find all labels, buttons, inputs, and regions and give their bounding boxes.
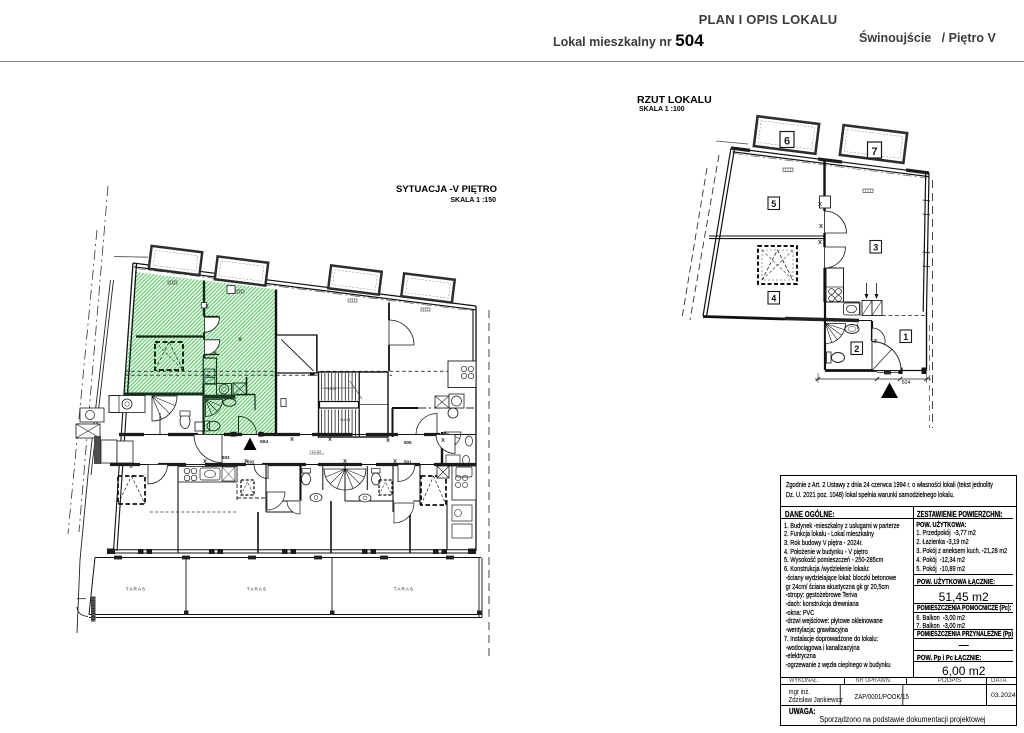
svg-text:505: 505: [404, 440, 412, 445]
svg-text:503: 503: [222, 455, 230, 460]
svg-text:504: 504: [902, 380, 911, 386]
svg-text:+14,58: +14,58: [340, 418, 351, 422]
svg-text:5: 5: [771, 199, 776, 209]
svg-text:1: 1: [903, 332, 908, 342]
svg-text:504: 504: [260, 439, 268, 445]
svg-text:TARAS: TARAS: [247, 587, 267, 592]
svg-text:TARAS: TARAS: [394, 587, 414, 592]
svg-text:7: 7: [871, 146, 877, 158]
svg-text:TARAS: TARAS: [126, 587, 146, 592]
svg-text:6: 6: [784, 135, 790, 147]
svg-text:4: 4: [771, 294, 776, 304]
svg-text:3: 3: [873, 243, 878, 253]
svg-text:2: 2: [854, 344, 859, 354]
svg-text:+14,52: +14,52: [309, 449, 322, 454]
svg-text:501: 501: [404, 460, 412, 465]
svg-text:+14,50: +14,50: [326, 387, 337, 391]
svg-text:502: 502: [247, 460, 255, 465]
